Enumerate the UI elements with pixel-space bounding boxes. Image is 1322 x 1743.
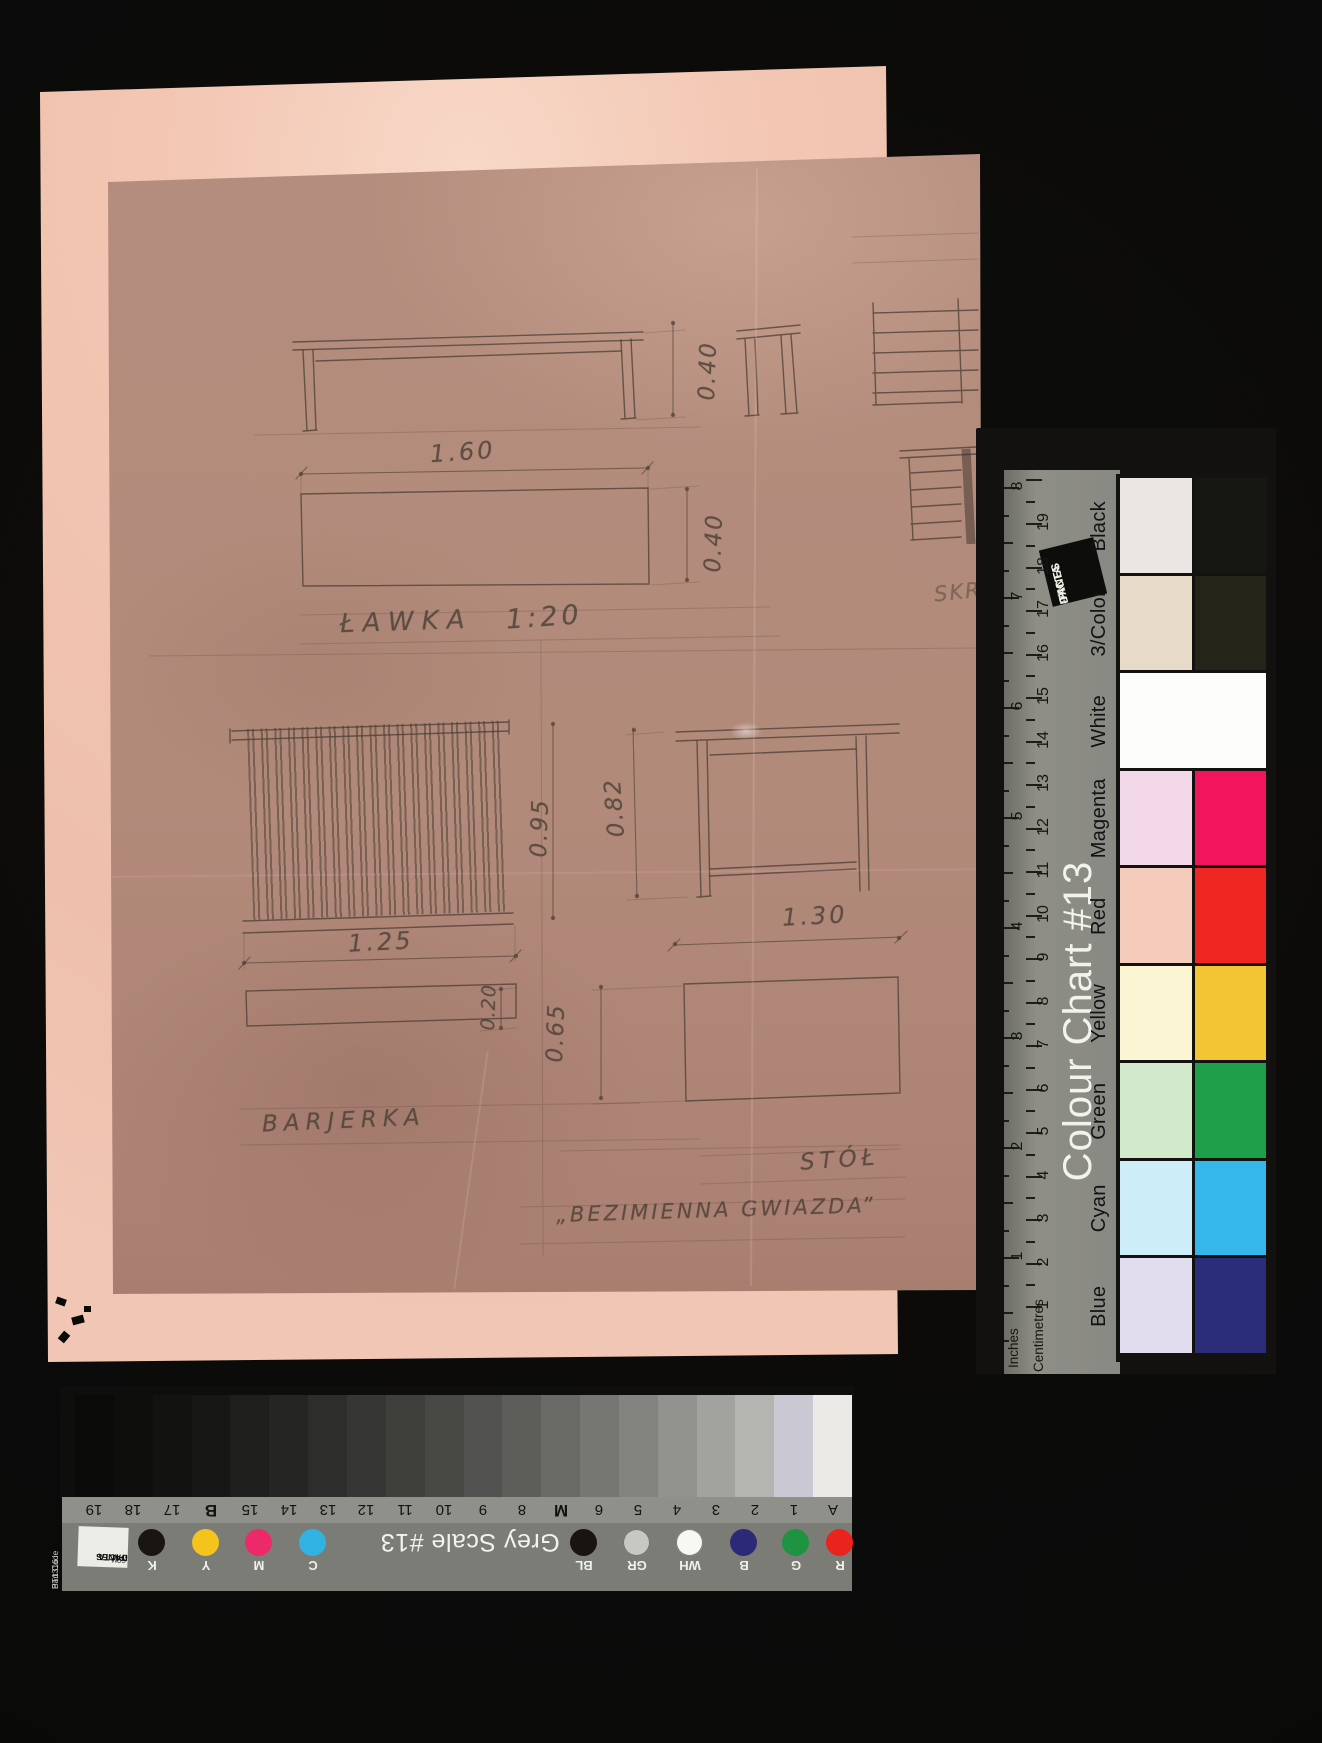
calibration-dot-label: Y [186,1558,226,1573]
grey-patch [347,1395,386,1497]
railing-length-dim: 1.25 [347,926,414,957]
railing-slats [247,721,509,920]
bench-depth-dim: 0.40 [700,513,728,573]
cm-number: 3 [1035,1206,1053,1230]
calibration-dot-label: GR [617,1558,657,1573]
inch-quarter-tick [1004,1120,1009,1122]
inches-label: Inches [1006,1288,1021,1368]
railing-depth-dim: 0.20 [477,984,501,1031]
cm-half-tick [1026,675,1035,677]
cm-number: 9 [1035,945,1053,969]
cm-half-tick [1026,893,1035,895]
chart-swatch-vivid [1195,868,1267,963]
inch-half-tick [1004,872,1013,874]
inch-number: 6 [1009,694,1027,718]
grey-patch [774,1395,813,1497]
grey-patch [735,1395,774,1497]
crate-dark-post [966,449,971,544]
inch-number: 4 [1009,914,1027,938]
inch-half-tick [1004,1312,1013,1314]
grey-patch-number: 18 [120,1501,146,1518]
railing-height-dim: 0.95 [526,798,554,858]
inch-half-tick [1004,1092,1013,1094]
inch-quarter-tick [1004,680,1009,682]
grey-patch-number: B [198,1500,224,1520]
grey-patch-number: 15 [237,1501,263,1518]
grey-patch [502,1395,541,1497]
bench-height-dim: 0.40 [694,341,722,401]
grey-patch-number: 17 [159,1501,185,1518]
grey-patch-number: 6 [586,1501,612,1518]
inch-number: 7 [1009,584,1027,608]
chart-row-label: White [1088,677,1111,765]
inch-number: 1 [1009,1244,1027,1268]
bench-label: ŁAWKA [340,605,473,640]
grey-patch [75,1395,114,1497]
table-depth-dim: 0.65 [542,1003,570,1063]
grey-patch [580,1395,619,1497]
cm-number: 1 [1035,1293,1053,1317]
chart-swatch-pale [1120,1063,1192,1158]
chart-row-label: 3/Color [1088,580,1111,668]
grey-patch-number: 3 [703,1501,729,1518]
inch-number: 5 [1009,804,1027,828]
inch-half-tick [1004,652,1013,654]
inch-quarter-tick [1004,1340,1009,1342]
cm-number: 4 [1035,1163,1053,1187]
inch-quarter-tick [1004,900,1009,902]
calibration-dot-m [245,1529,272,1556]
calibration-dot-label: B [724,1558,764,1573]
table-height-dim: 0.82 [600,777,630,838]
dimension-end-dots [242,321,901,1100]
cm-number: 17 [1035,597,1053,621]
grey-patch-number: 4 [664,1501,690,1518]
bench-side-view [293,332,643,431]
chart-row-label: Green [1088,1067,1111,1155]
cm-half-tick [1026,545,1035,547]
calibration-dot-label: G [776,1558,816,1573]
grey-patch-number: 2 [742,1501,768,1518]
grey-patch [153,1395,192,1497]
chart-row-label: Magenta [1088,775,1111,863]
grey-patch [658,1395,697,1497]
chart-swatch-pale [1120,478,1192,573]
inch-quarter-tick [1004,570,1009,572]
cm-number: 2 [1035,1250,1053,1274]
cm-number: 10 [1035,902,1053,926]
cm-half-tick [1026,936,1035,938]
calibration-dot-label: BL [564,1558,604,1573]
grey-patch-number: 14 [276,1501,302,1518]
cm-number: 16 [1035,641,1053,665]
cm-half-tick [1026,1284,1035,1286]
inch-quarter-tick [1004,625,1009,627]
calibration-dot-gr [623,1529,650,1556]
scale-label: 1:20 [505,599,584,635]
calibration-dot-k [138,1529,165,1556]
calibration-dot-bl [570,1529,597,1556]
chart-row-label: Black [1088,482,1111,570]
table-length-dim: 1.30 [781,900,848,931]
cm-half-tick [1026,980,1035,982]
grey-patch [192,1395,231,1497]
cm-half-tick [1026,1154,1035,1156]
grey-patch-number: 8 [509,1501,535,1518]
chart-swatch-vivid [1195,771,1267,866]
centimetres-label: Centimetres [1031,1276,1046,1372]
inch-quarter-tick [1004,955,1009,957]
grey-patch-number: 5 [625,1501,651,1518]
cm-half-tick [1026,806,1035,808]
cm-number: 15 [1035,684,1053,708]
archival-photo-stage: ŁAWKA 1:20 1.60 0.40 0.40 1.25 0.95 0.20… [0,0,1322,1743]
inch-quarter-tick [1004,1175,1009,1177]
calibration-dot-label: M [239,1558,279,1573]
grey-patch-number: 11 [392,1501,418,1518]
chart-row-label: Red [1088,872,1111,960]
inch-quarter-tick [1004,845,1009,847]
inch-quarter-tick [1004,1010,1009,1012]
grey-patch [464,1395,503,1497]
inch-quarter-tick [1004,515,1009,517]
chart-row-label: Cyan [1088,1165,1111,1253]
cm-tick [1026,479,1042,481]
cm-number: 8 [1035,989,1053,1013]
chart-swatch-pale [1120,576,1192,671]
chart-swatch-vivid [1195,478,1267,573]
cm-number: 18 [1035,554,1053,578]
cm-half-tick [1026,849,1035,851]
grey-patch-number: 1 [781,1501,807,1518]
inch-quarter-tick [1004,1285,1009,1287]
cm-number: 12 [1035,815,1053,839]
grey-patch [697,1395,736,1497]
inch-number: 8 [1009,474,1027,498]
cm-number: 14 [1035,728,1053,752]
chart-swatch-vivid [1195,1161,1267,1256]
grey-scale-title: Grey Scale #13 [378,1527,562,1556]
chart-swatch-vivid [1195,966,1267,1061]
inch-quarter-tick [1004,1065,1009,1067]
inch-half-tick [1004,1202,1013,1204]
cm-number: 7 [1035,1032,1053,1056]
grey-patch-number: 9 [470,1501,496,1518]
table-label: STÓŁ [799,1144,880,1175]
chart-swatch-pale [1120,673,1266,768]
grey-patch [308,1395,347,1497]
grey-patch-number: 13 [315,1501,341,1518]
grey-patch [230,1395,269,1497]
chart-swatch-pale [1120,1258,1192,1353]
inch-quarter-tick [1004,735,1009,737]
inch-number: 3 [1009,1024,1027,1048]
grey-patch [114,1395,153,1497]
cm-half-tick [1026,1023,1035,1025]
calibration-dot-wh [676,1529,703,1556]
calibration-dot-b [730,1529,757,1556]
chart-swatch-pale [1120,868,1192,963]
grey-patch-number: A [820,1501,846,1518]
calibration-dot-label: K [132,1558,172,1573]
calibration-dot-g [782,1529,809,1556]
chart-swatch-pale [1120,1161,1192,1256]
cm-half-tick [1026,1197,1035,1199]
chart-row-label: Blue [1088,1262,1111,1350]
grey-patch-number: M [548,1500,574,1520]
inch-number: 2 [1009,1134,1027,1158]
chart-swatch-pale [1120,771,1192,866]
chart-swatch-vivid [1195,576,1267,671]
chart-swatch-vivid [1195,1258,1267,1353]
grey-patch [269,1395,308,1497]
partial-crate-views [873,299,978,540]
bench-plan-view [301,488,649,586]
cm-number: 19 [1035,510,1053,534]
cm-number: 11 [1035,858,1053,882]
cm-half-tick [1026,762,1035,764]
calibration-dot-label: R [820,1558,860,1573]
paper-speck [84,1306,91,1312]
bench-length-dim: 1.60 [429,436,496,468]
cm-half-tick [1026,501,1035,503]
grey-patch [541,1395,580,1497]
inch-half-tick [1004,542,1013,544]
cm-half-tick [1026,1241,1035,1243]
calibration-dot-label: C [293,1558,333,1573]
calibration-dot-c [299,1529,326,1556]
grey-patch [813,1395,852,1497]
danes-picta-logo-small: DANES -PICTA .COM [77,1526,128,1568]
cm-number: 6 [1035,1076,1053,1100]
grey-patch-number: 10 [431,1501,457,1518]
chart-swatch-vivid [1195,1063,1267,1158]
chart-swatch-pale [1120,966,1192,1061]
cm-number: 5 [1035,1119,1053,1143]
calibration-dot-label: WH [670,1558,710,1573]
calibration-dot-y [192,1529,219,1556]
cm-half-tick [1026,719,1035,721]
part-code-line: BT1316 [50,1559,61,1589]
bench-end-view [737,325,800,416]
cm-half-tick [1026,1110,1035,1112]
grey-patch [619,1395,658,1497]
dimension-lines [239,322,907,1099]
grey-patch-number: 12 [353,1501,379,1518]
inch-half-tick [1004,982,1013,984]
cm-half-tick [1026,588,1035,590]
grey-patch [386,1395,425,1497]
inch-half-tick [1004,762,1013,764]
cm-half-tick [1026,1067,1035,1069]
inch-quarter-tick [1004,1230,1009,1232]
calibration-dot-r [826,1529,853,1556]
grey-patch [425,1395,464,1497]
chart-row-label: Yellow [1088,970,1111,1058]
inch-quarter-tick [1004,790,1009,792]
cm-number: 13 [1035,771,1053,795]
brand-line: .COM [112,1555,128,1562]
cm-half-tick [1026,632,1035,634]
grey-patch-number: 19 [81,1501,107,1518]
